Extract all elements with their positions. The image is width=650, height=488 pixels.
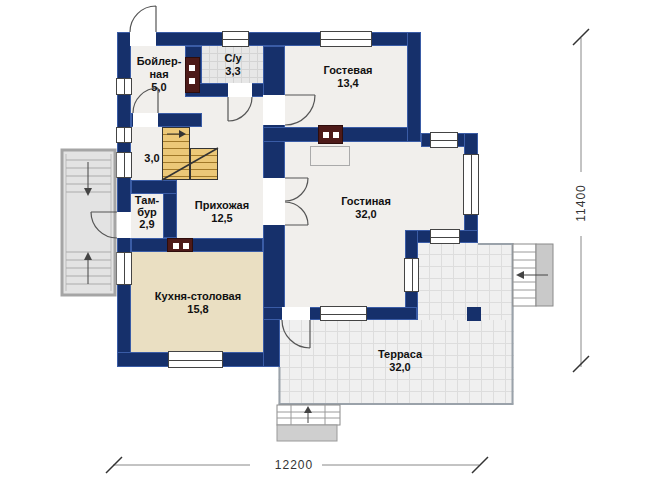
door-opening-tambour-exit [117, 212, 131, 238]
label-boiler-room: Бойлер- ная 5,0 [137, 55, 182, 94]
room-area: 3,0 [144, 152, 159, 165]
room-area: 32,0 [341, 208, 391, 221]
label-hallway: Прихожая 12,5 [195, 199, 249, 225]
window-living-top-right [430, 132, 458, 148]
chimney-flue [173, 243, 179, 249]
window-terrace-top [430, 229, 460, 244]
label-stair-landing: 3,0 [144, 152, 159, 165]
door-opening-boiler-exterior [130, 32, 156, 46]
window-boiler-left-1 [116, 78, 132, 95]
room-name: Гостиная [341, 195, 391, 208]
fireplace-hearth [310, 146, 350, 166]
room-name: Гостевая [323, 64, 372, 77]
chimney-boiler [185, 57, 200, 93]
room-area: 32,0 [378, 361, 422, 374]
window-top-bathroom [222, 31, 249, 47]
label-terrace: Терраса 32,0 [378, 348, 422, 374]
door-boiler-exterior [130, 6, 156, 32]
door-opening-bathroom [228, 83, 252, 97]
label-guest-room: Гостевая 13,4 [323, 64, 372, 90]
fireplace-living [318, 125, 343, 144]
window-boiler-left-2 [116, 127, 132, 143]
chimney-flue [333, 132, 339, 138]
dimension-depth: 11400 [574, 173, 588, 233]
stair-flight-upper [162, 127, 190, 180]
wall-guest-right [407, 32, 421, 142]
terrace-roof-post [467, 307, 481, 321]
wall-kitchen-top [131, 238, 263, 252]
room-name: С/у [224, 52, 241, 65]
door-opening-guest [263, 95, 285, 125]
window-terrace-left [404, 258, 419, 292]
room-name: Там- [135, 194, 159, 206]
terrace-steps-right [513, 244, 553, 306]
room-name: Терраса [378, 348, 422, 361]
floor-living-room-lower [285, 230, 405, 307]
chimney-flue [189, 65, 195, 71]
room-name: Кухня-столовая [155, 290, 241, 303]
window-kitchen-bottom [168, 351, 223, 368]
room-name: Прихожая [195, 199, 249, 212]
terrace-steps-bottom [277, 405, 340, 441]
wall-tambour-top [131, 180, 177, 194]
window-stairs-left [116, 152, 132, 178]
room-area: 2,9 [135, 218, 159, 230]
room-area: 5,0 [137, 81, 182, 94]
chimney-flue [323, 132, 329, 138]
room-area: 15,8 [155, 303, 241, 316]
door-opening-boiler [133, 113, 158, 127]
label-bathroom: С/у 3,3 [224, 52, 241, 78]
wall-top [117, 32, 421, 46]
label-tambour: Там- бур 2,9 [135, 194, 159, 230]
stair-flight-lower [190, 148, 218, 180]
floor-plan: Бойлер- ная 5,0 С/у 3,3 Гостевая 13,4 3,… [0, 0, 650, 488]
room-name: Бойлер- [137, 55, 182, 68]
chimney-kitchen [167, 238, 193, 252]
door-tambour-exit [91, 212, 117, 238]
floor-terrace-upper [418, 243, 514, 320]
entry-porch [62, 150, 115, 295]
window-living-bottom [320, 306, 367, 321]
door-opening-terrace [282, 307, 310, 320]
chimney-flue [183, 243, 189, 249]
room-area: 13,4 [323, 77, 372, 90]
label-living-room: Гостиная 32,0 [341, 195, 391, 221]
window-living-right [463, 154, 479, 215]
window-top-guest [320, 31, 372, 47]
dimension-width: 12200 [258, 458, 330, 472]
room-area: 12,5 [195, 212, 249, 225]
room-name: бур [135, 206, 159, 218]
window-kitchen-left [116, 252, 132, 285]
label-kitchen-dining: Кухня-столовая 15,8 [155, 290, 241, 316]
door-opening-living-double [263, 178, 285, 225]
room-area: 3,3 [224, 65, 241, 78]
chimney-flue [189, 78, 195, 84]
wall-tambour-right [163, 190, 177, 238]
room-name: ная [137, 68, 182, 81]
